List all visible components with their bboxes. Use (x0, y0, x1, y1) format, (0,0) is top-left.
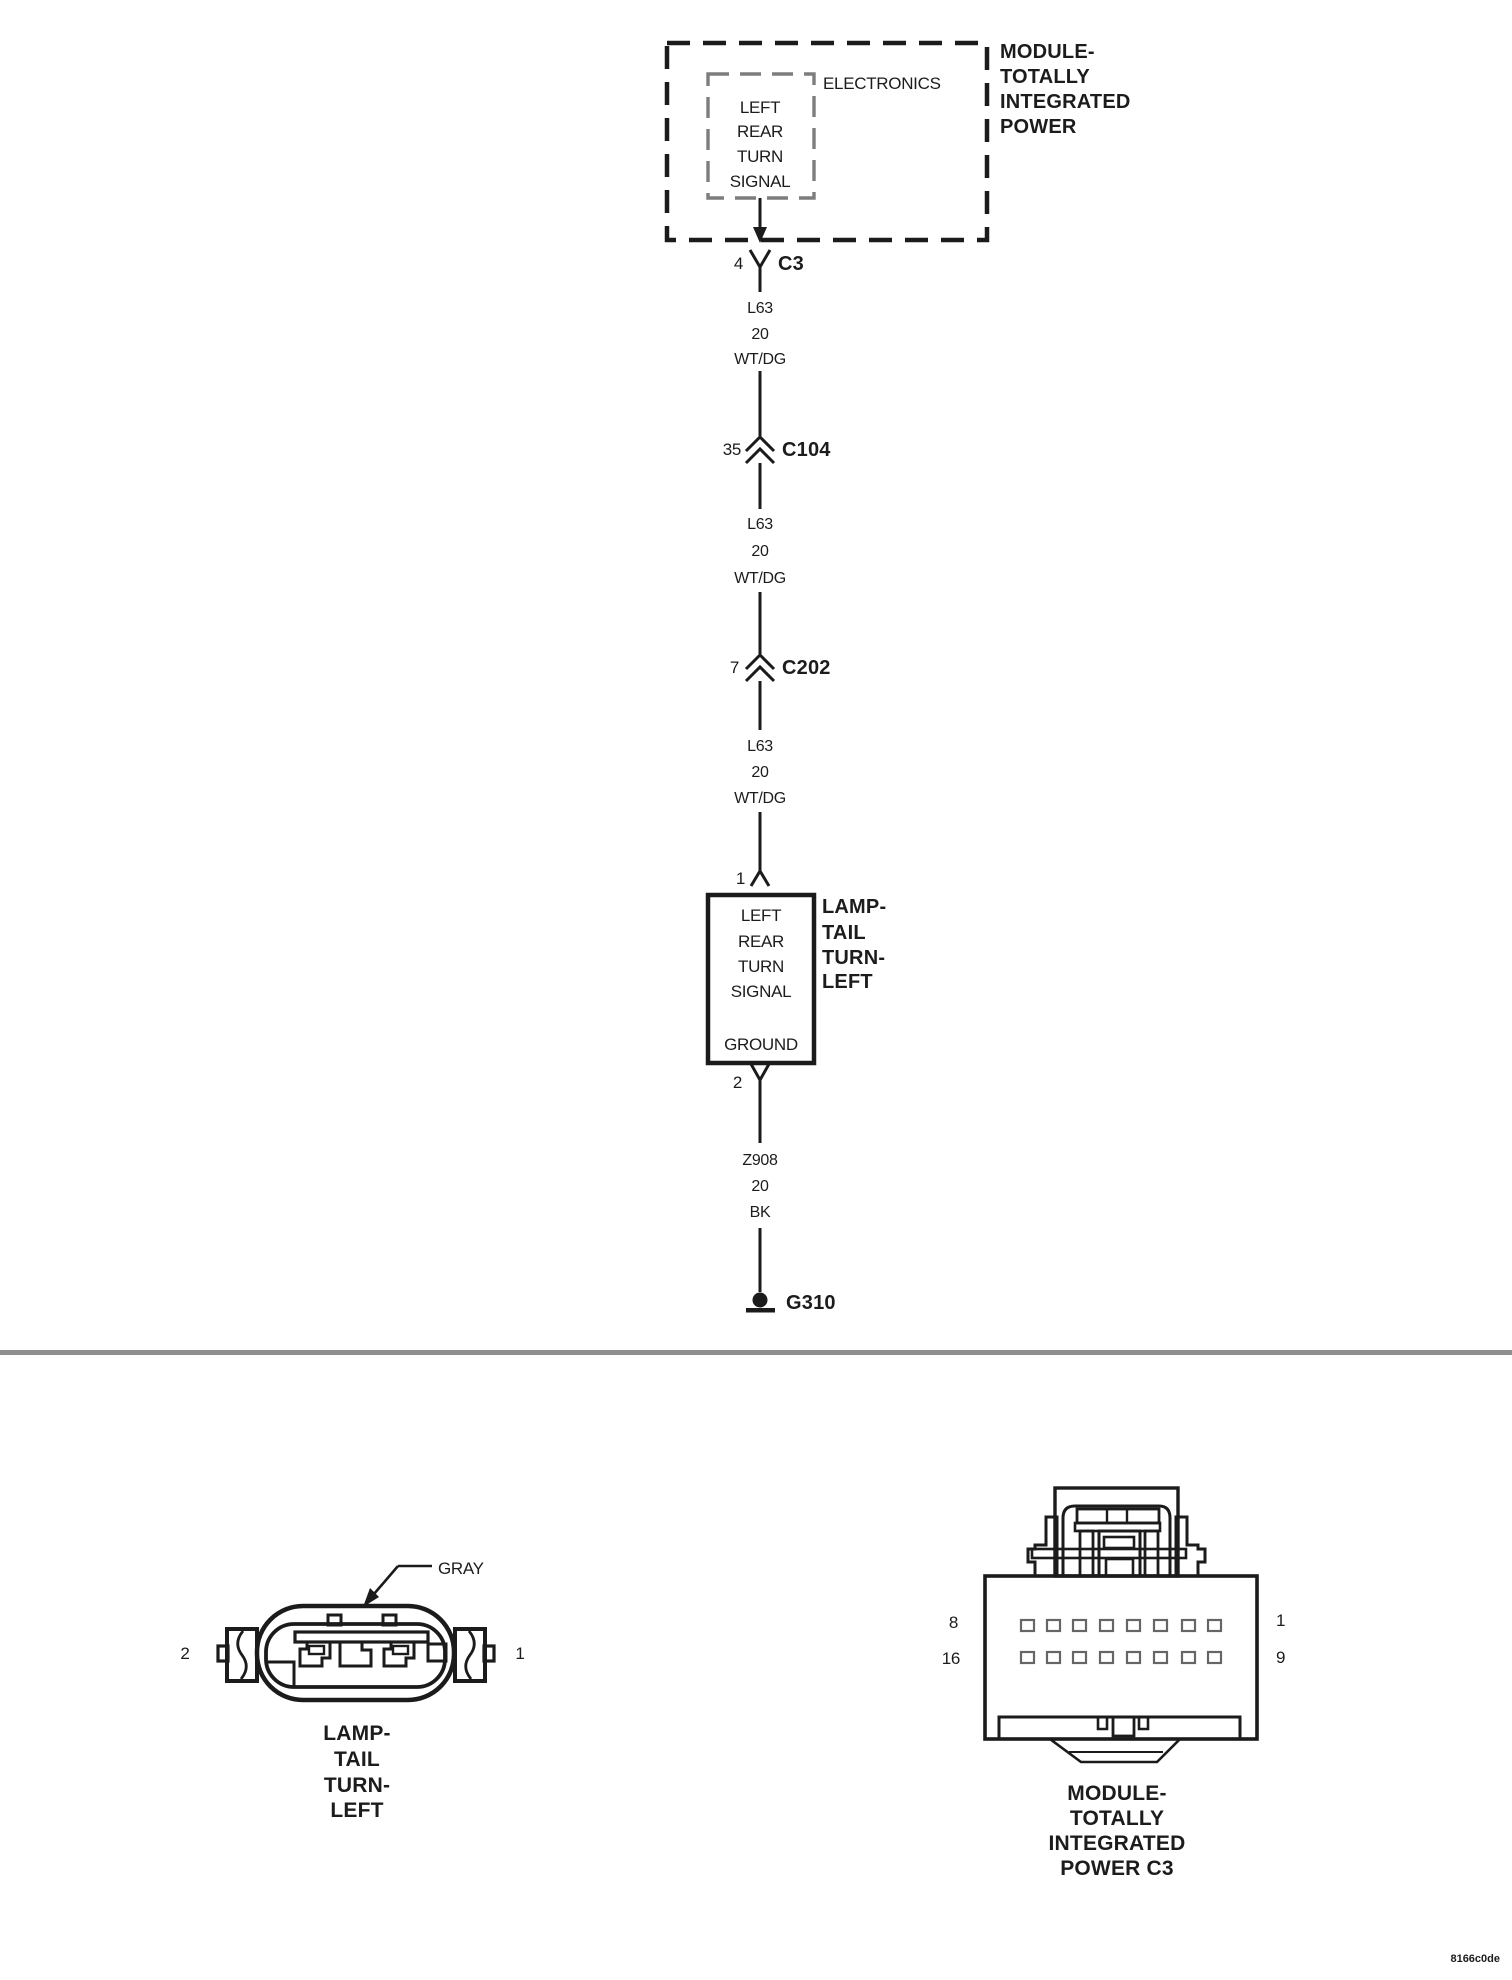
left-connector-caption-line: TAIL (334, 1748, 380, 1771)
wire-circuit: L63 (747, 300, 773, 317)
right-connector-latch-center-foot (1106, 1559, 1133, 1576)
wire-color: WT/DG (734, 570, 786, 587)
terminal-cavity-detail (309, 1646, 324, 1654)
module-component-line: SIGNAL (730, 172, 791, 191)
module-component-line: LEFT (740, 98, 780, 117)
wiring-diagram-page: ELECTRONICS LEFT REAR TURN SIGNAL MODULE… (0, 0, 1512, 1980)
right-connector-pin-9: 9 (1276, 1648, 1285, 1667)
right-connector-latch-bar (1077, 1509, 1159, 1523)
right-connector-wedge (1050, 1739, 1180, 1762)
right-connector-caption-line: TOTALLY (1070, 1807, 1164, 1830)
right-connector-wing-left (1028, 1517, 1057, 1576)
connector-symbol-pin1 (751, 871, 769, 886)
lamp-name-line: LAMP- (822, 896, 886, 918)
connector-name-c3: C3 (778, 253, 804, 275)
right-connector-body (985, 1576, 1257, 1739)
lamp-name-line: TURN- (822, 947, 885, 969)
right-connector-pin-8: 8 (949, 1613, 958, 1632)
lamp-name-line: LEFT (822, 971, 873, 993)
pin-number-lamp-in: 1 (736, 869, 745, 888)
wire-circuit: L63 (747, 738, 773, 755)
lamp-component-line: TURN (738, 957, 784, 976)
right-connector-latch-post (1145, 1531, 1158, 1576)
lamp-name-line: TAIL (822, 922, 866, 944)
lamp-component-line: SIGNAL (731, 982, 792, 1001)
left-connector-tab-left-profile (238, 1631, 247, 1679)
gray-callout-leader (374, 1566, 398, 1594)
terminal-cavity-detail (393, 1646, 408, 1654)
left-connector-tab-right-profile (466, 1631, 475, 1679)
right-connector-bottom-notch (1098, 1717, 1107, 1729)
right-connector-terminal-grid (1021, 1620, 1221, 1663)
ground-name: G310 (786, 1292, 836, 1314)
left-connector-index-notch (383, 1615, 396, 1625)
electronics-label: ELECTRONICS (823, 74, 941, 93)
section-divider (0, 1350, 1512, 1355)
left-connector-index-notch (328, 1615, 341, 1625)
wire-gauge: 20 (751, 764, 769, 781)
pin-number-c3: 4 (734, 254, 743, 273)
right-connector-latch-center-window (1104, 1537, 1134, 1548)
left-connector-pin-2: 2 (180, 1644, 189, 1663)
lamp-component-line: LEFT (741, 906, 781, 925)
left-connector-caption-line: LEFT (330, 1799, 383, 1822)
module-component-line: REAR (737, 122, 783, 141)
wire-color: BK (750, 1204, 771, 1221)
connector-color-label: GRAY (438, 1559, 484, 1578)
connector-name-c202: C202 (782, 657, 831, 679)
right-connector-bottom-notch (1139, 1717, 1148, 1729)
wire-color: WT/DG (734, 351, 786, 368)
ground-bar-icon (746, 1308, 775, 1313)
module-name-line: TOTALLY (1000, 66, 1090, 88)
right-connector-pin-16: 16 (942, 1649, 960, 1668)
pin-number-lamp-out: 2 (733, 1073, 742, 1092)
lamp-ground-terminal-label: GROUND (724, 1035, 798, 1054)
module-name-line: INTEGRATED (1000, 91, 1131, 113)
module-component-line: TURN (737, 147, 783, 166)
left-connector-pin-1: 1 (515, 1644, 524, 1663)
wire-gauge: 20 (751, 326, 769, 343)
right-connector-bottom-tab (1113, 1717, 1134, 1736)
wire-circuit: Z908 (742, 1152, 778, 1169)
right-connector-wing-right (1176, 1517, 1205, 1576)
connector-symbol-c3 (750, 250, 770, 267)
wire-circuit: L63 (747, 516, 773, 533)
terminal-cavity (340, 1642, 371, 1666)
left-connector-caption-line: LAMP- (323, 1722, 391, 1745)
connector-symbol-c104 (746, 449, 774, 463)
pin-number-c104: 35 (723, 440, 741, 459)
wire-color: WT/DG (734, 790, 786, 807)
left-connector-caption-line: TURN- (324, 1774, 390, 1797)
right-connector-caption-line: INTEGRATED (1049, 1832, 1186, 1855)
wire-gauge: 20 (751, 1178, 769, 1195)
wiring-diagram: ELECTRONICS LEFT REAR TURN SIGNAL MODULE… (0, 0, 1512, 1980)
connector-symbol-c202 (746, 667, 774, 681)
right-connector-latch-post (1080, 1531, 1093, 1576)
right-connector-caption-line: MODULE- (1067, 1782, 1166, 1805)
module-name-line: MODULE- (1000, 41, 1095, 63)
lamp-component-line: REAR (738, 932, 784, 951)
left-connector-tab-right-bump (484, 1646, 494, 1661)
right-connector-pin-1: 1 (1276, 1611, 1285, 1630)
connector-name-c104: C104 (782, 439, 831, 461)
module-name-line: POWER (1000, 116, 1077, 138)
page-code: 8166c0de (1450, 1953, 1500, 1965)
wire-gauge: 20 (751, 543, 769, 560)
right-connector-caption-line: POWER C3 (1060, 1857, 1174, 1880)
connector-symbol-pin2 (751, 1064, 769, 1080)
ground-symbol-icon (753, 1293, 768, 1308)
pin-number-c202: 7 (730, 658, 739, 677)
left-connector-tab-left-bump (218, 1646, 228, 1661)
